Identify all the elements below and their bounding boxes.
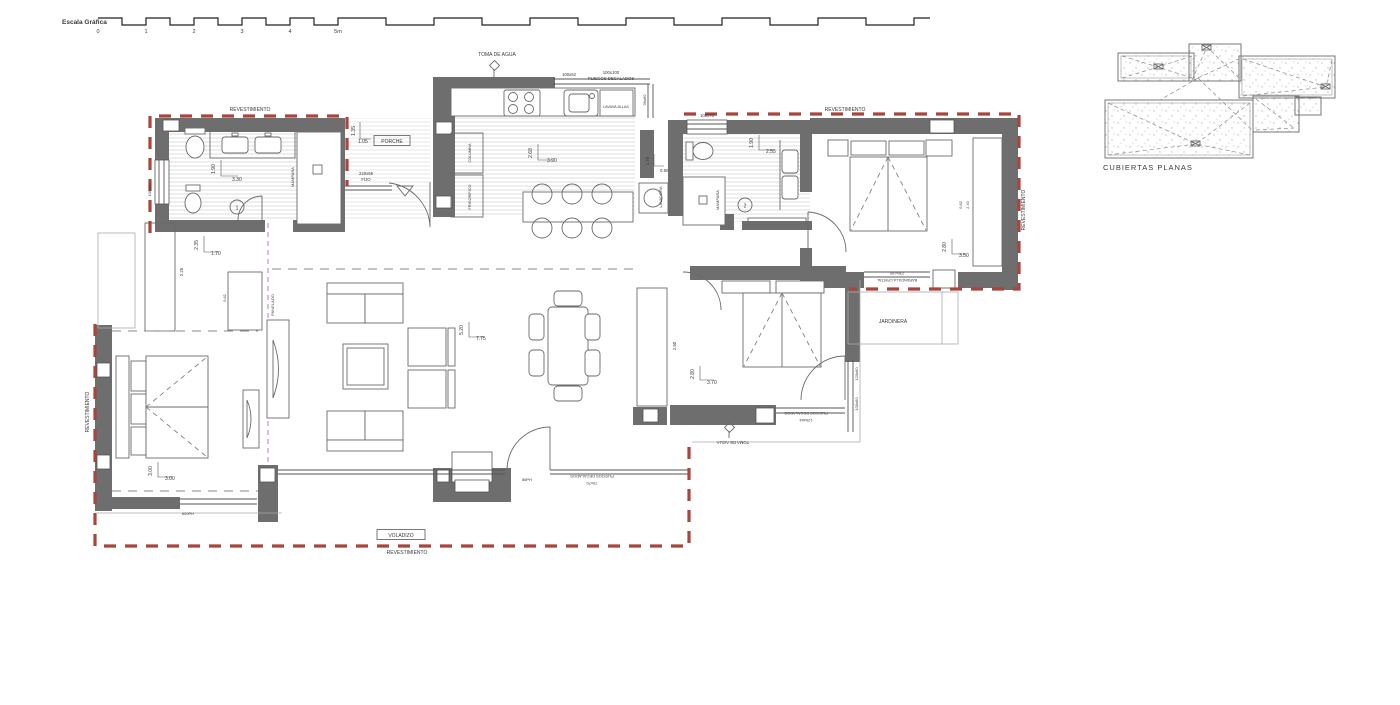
dim-label: 0.62 (223, 294, 227, 301)
headboard (116, 356, 129, 458)
scale-title: Escala Gráfica (62, 19, 107, 26)
nightstand (926, 140, 952, 156)
dim-label: 1.05 (358, 139, 368, 145)
scale-tick: 1 (144, 29, 147, 35)
tall-unit-label: FRIGORIFICO (468, 185, 472, 210)
panel-label: PANELADO (270, 294, 275, 316)
floor-plan-drawing: Escala Gráfica 0 1 2 3 4 5m (0, 0, 1400, 700)
railing-size-label: 230x100 (890, 271, 905, 275)
room-number: 1 (236, 206, 239, 212)
window-size-label: 600PH (182, 511, 194, 516)
window-size-label: 100x60 (854, 397, 859, 411)
planter: JARDINERA (848, 292, 958, 344)
floor-plan-sheet: Escala Gráfica 0 1 2 3 4 5m (0, 0, 1400, 700)
window-size-label: 70x70 (586, 481, 598, 486)
dim-label: 0.80 (660, 168, 669, 173)
dining-chair (585, 314, 600, 340)
dim-label: 3.50 (959, 253, 969, 259)
room-number: 2 (744, 204, 747, 210)
toilet-tank (686, 142, 693, 160)
overhang-label: VOLADIZO (388, 533, 413, 539)
dining-chair (554, 291, 582, 306)
toilet (186, 136, 204, 158)
kitchen-counter (451, 88, 635, 116)
bidet (185, 193, 201, 213)
dim-label: 3.90 (547, 158, 557, 164)
bidet-back (186, 185, 200, 191)
pillow (889, 141, 924, 155)
cladding-label: REVESTIMIENTO (825, 107, 866, 113)
faucet (265, 133, 271, 136)
living-room: 5.20 7.75 86PH PLIEGOS DECALADOS 70x70 P… (270, 283, 614, 486)
dim-label: 3.70 (707, 380, 717, 386)
washing-machine (639, 183, 668, 213)
armchair-side (448, 328, 455, 366)
dim-label: 1.35 (351, 126, 357, 136)
scale-tick: 4 (288, 29, 291, 35)
pillow (131, 394, 146, 424)
faucet (232, 133, 238, 136)
sofa-back (327, 440, 403, 451)
roof-plan-title: CUBIERTAS PLANAS (1103, 163, 1193, 172)
water-intake-label: TOMA DE AGUA (478, 52, 516, 58)
hall-wardrobe (145, 223, 175, 331)
cladding-label: REVESTIMIENTO (85, 392, 91, 433)
planter-label: JARDINERA (879, 319, 908, 325)
bedroom2-wardrobe (637, 288, 667, 406)
dining-chair (554, 386, 582, 401)
dim-label: 3.30 (232, 177, 242, 183)
armchair-side (448, 370, 455, 408)
dim-label: 7.75 (476, 336, 486, 342)
cladding-label: REVESTIMIENTO (1021, 190, 1027, 231)
toilet (693, 143, 713, 160)
door-arc (808, 212, 846, 252)
dim-label: 3.00 (148, 466, 154, 476)
cladding-label: REVESTIMIENTO (230, 107, 271, 113)
tv-sideboard (267, 320, 289, 418)
shower-screen-label: MAMPARA (715, 190, 720, 210)
scale-tick: 0 (96, 29, 99, 35)
coffee-table (343, 344, 388, 389)
roof-plan: CUBIERTAS PLANAS (1103, 44, 1335, 172)
armchair (408, 328, 446, 366)
sofa-back (327, 283, 403, 294)
scale-tick: 5m (334, 29, 342, 35)
sofa-seat (327, 294, 365, 323)
dim-label: 2.50 (672, 341, 677, 350)
fixed-window-size: 220x65 (359, 171, 374, 176)
dining-chair (585, 350, 600, 376)
dim-label: 3.00 (165, 476, 175, 482)
staggered-folds-label: PLIEGOS DECALADOS (784, 411, 828, 416)
pillow (851, 141, 886, 155)
dim-label: 2.25 (179, 267, 184, 276)
dim-label: 1.70 (645, 156, 650, 165)
bedroom1-wardrobe (973, 138, 1002, 266)
window-size-label: 100x62 (562, 72, 577, 77)
sink (222, 137, 248, 153)
glass-railing-label: BARANDILLA CRISTAL (877, 278, 917, 282)
staggered-folds-label: PLIEGOS DECALADOS (570, 474, 614, 479)
armchair (408, 370, 446, 408)
sink (255, 137, 281, 153)
window-size-label: 100x65 (147, 183, 152, 197)
dim-label: 2.80 (942, 242, 948, 252)
porch-label: PORCHE (381, 139, 403, 145)
nightstand (828, 140, 848, 156)
dim-label: 1.70 (211, 251, 221, 257)
window-size-label: 120x64 (799, 418, 813, 423)
dishwasher-label: LAVAVAJILLAS (603, 105, 629, 109)
bedroom1: 2.80 3.50 0.62 2.40 230x100 BARANDILLA C… (808, 140, 970, 282)
dim-label: 1.90 (211, 164, 217, 174)
shower (297, 132, 341, 224)
door-code-label: 86PH (522, 477, 532, 482)
sink (782, 176, 798, 199)
water-intake-symbol (490, 61, 500, 71)
pillow (131, 427, 146, 455)
staggered-folds-label: PLIEGOS DECALADOS (588, 76, 635, 81)
washer-label: LAVADORA (658, 186, 663, 208)
window-size-label: 100x100 (603, 70, 620, 75)
dining-chair (529, 314, 544, 340)
toilet-tank (185, 128, 205, 134)
dim-label: 5.20 (459, 325, 465, 335)
terrace-door-arc (507, 427, 550, 470)
cladding-label: REVESTIMIENTO (387, 550, 428, 556)
sink (782, 150, 798, 173)
sofa-seat (327, 411, 365, 440)
dining-chair (529, 350, 544, 376)
dim-label: 2.80 (690, 369, 696, 379)
sofa-seat (365, 411, 403, 440)
dim-label: 2.55 (766, 149, 776, 155)
dim-label: 2.68 (528, 148, 534, 158)
dim-label: 2.35 (194, 240, 200, 250)
wardrobe-depth-label: 0.62 (959, 201, 963, 208)
shower-screen-label: MAMPARA (290, 167, 295, 187)
island-bar (523, 192, 633, 222)
pillow (131, 361, 146, 391)
window-size-label: 100x70 (700, 113, 715, 118)
dining-table (548, 307, 588, 385)
wardrobe-length-label: 2.40 (966, 201, 970, 208)
hall-wardrobe-small (228, 272, 262, 330)
double-bed (850, 157, 927, 231)
hall: 2.35 1.70 2.25 0.62 (179, 236, 227, 302)
window-size-label: 35x60 (642, 94, 647, 106)
fixed-window-label: FIJO (361, 177, 371, 182)
pillow (722, 281, 770, 293)
pillow (776, 281, 824, 293)
dim-label: 1.90 (749, 138, 755, 148)
tall-unit-label: COLUMNA (468, 143, 472, 162)
water-intake-label: TOMA DE AGUA (717, 440, 750, 445)
scale-tick: 3 (240, 29, 243, 35)
scale-tick: 2 (192, 29, 195, 35)
scale-stepped-line (98, 18, 930, 25)
window-size-label: 120x60 (854, 367, 859, 381)
graphic-scale-bar: Escala Gráfica 0 1 2 3 4 5m (62, 18, 930, 35)
sofa-seat (365, 294, 403, 323)
